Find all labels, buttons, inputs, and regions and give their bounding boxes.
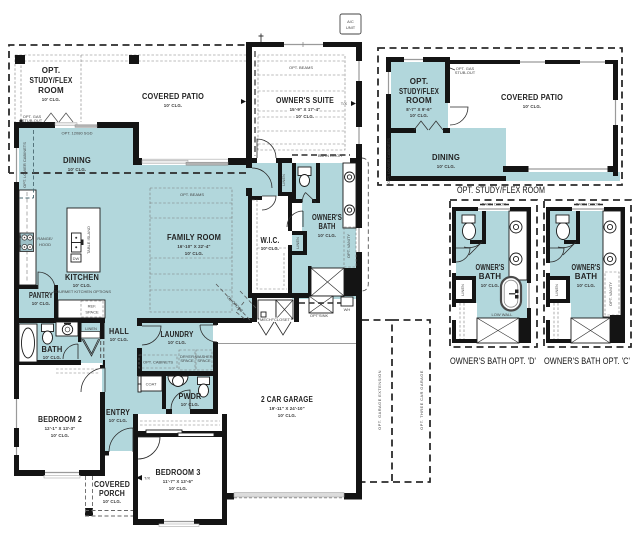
- svg-text:OPT.: OPT.: [42, 66, 61, 75]
- svg-text:OPT. LOWER CABINETS: OPT. LOWER CABINETS: [386, 138, 391, 184]
- svg-text:10' CLG.: 10' CLG.: [523, 104, 541, 109]
- svg-text:SPACE: SPACE: [180, 358, 194, 363]
- svg-text:OPT. VANITY: OPT. VANITY: [608, 282, 613, 306]
- svg-text:KITCHEN: KITCHEN: [65, 273, 99, 282]
- svg-text:OPT'SINK: OPT'SINK: [310, 313, 329, 318]
- svg-text:OPT. CABINETS: OPT. CABINETS: [143, 360, 173, 365]
- svg-text:OPT. GARAGE EXTENSION: OPT. GARAGE EXTENSION: [377, 370, 382, 430]
- svg-text:10' CLG.: 10' CLG.: [318, 233, 336, 238]
- svg-text:16'-10" X 22'-4": 16'-10" X 22'-4": [177, 244, 210, 249]
- svg-text:10' CLG.: 10' CLG.: [278, 413, 296, 418]
- svg-text:10' CLG.: 10' CLG.: [43, 355, 61, 360]
- svg-text:BARN DOOR: BARN DOOR: [482, 202, 506, 207]
- svg-text:10' CLG.: 10' CLG.: [110, 337, 128, 342]
- svg-text:BARN DOOR: BARN DOOR: [576, 202, 600, 207]
- svg-text:DINING: DINING: [63, 156, 91, 165]
- svg-text:19'-11" X 24'-10": 19'-11" X 24'-10": [269, 406, 305, 411]
- svg-text:10' CLG.: 10' CLG.: [103, 499, 121, 504]
- svg-text:BATH: BATH: [575, 272, 597, 281]
- svg-text:OWNER'S: OWNER'S: [476, 263, 505, 272]
- svg-text:STUDY/FLEX: STUDY/FLEX: [399, 87, 439, 96]
- svg-text:OWNER'S: OWNER'S: [572, 263, 601, 272]
- svg-text:LOW WALL: LOW WALL: [492, 312, 514, 317]
- svg-text:OPT.: OPT.: [410, 77, 429, 86]
- svg-text:10' CLG.: 10' CLG.: [261, 246, 279, 251]
- svg-text:DW: DW: [73, 256, 80, 261]
- svg-text:OPT. BEAMS: OPT. BEAMS: [289, 65, 313, 70]
- svg-text:10' CLG.: 10' CLG.: [437, 164, 455, 169]
- svg-text:REF.: REF.: [88, 304, 97, 309]
- svg-text:PORCH: PORCH: [99, 489, 125, 498]
- svg-text:COAT: COAT: [146, 382, 157, 387]
- svg-text:8'-7" X 9'-6": 8'-7" X 9'-6": [406, 107, 432, 112]
- svg-text:10' CLG.: 10' CLG.: [481, 283, 499, 288]
- svg-text:COVERED PATIO: COVERED PATIO: [142, 92, 204, 101]
- svg-text:STUDY/FLEX: STUDY/FLEX: [30, 76, 73, 85]
- svg-text:HALL: HALL: [109, 327, 129, 336]
- svg-text:11'-7" X 13'-6": 11'-7" X 13'-6": [163, 479, 193, 484]
- svg-text:BARN DOOR: BARN DOOR: [318, 153, 342, 158]
- svg-text:T/X: T/X: [144, 476, 151, 481]
- svg-text:STUB-OUT: STUB-OUT: [455, 70, 476, 75]
- svg-text:2 CAR GARAGE: 2 CAR GARAGE: [261, 395, 313, 404]
- svg-text:FAMILY ROOM: FAMILY ROOM: [167, 233, 221, 242]
- svg-text:A/C: A/C: [347, 19, 354, 24]
- svg-text:OPT. VANITY: OPT. VANITY: [346, 234, 351, 258]
- svg-text:10' CLG.: 10' CLG.: [168, 340, 186, 345]
- svg-text:10' CLG.: 10' CLG.: [296, 114, 314, 119]
- svg-text:TABLE ISLAND: TABLE ISLAND: [86, 226, 91, 254]
- svg-text:HOOD: HOOD: [39, 242, 51, 247]
- svg-text:12'-1" X 13'-3": 12'-1" X 13'-3": [45, 426, 76, 431]
- svg-text:LINEN: LINEN: [85, 326, 97, 331]
- svg-text:BATH: BATH: [42, 345, 63, 354]
- svg-text:10' CLG.: 10' CLG.: [68, 167, 86, 172]
- svg-text:10' CLG.: 10' CLG.: [185, 251, 203, 256]
- svg-text:WH: WH: [344, 307, 351, 312]
- svg-text:OWNER'S: OWNER'S: [312, 213, 342, 222]
- svg-text:OPT. BEAMS: OPT. BEAMS: [180, 192, 204, 197]
- svg-text:W.I.C.: W.I.C.: [261, 236, 280, 245]
- svg-text:COVERED: COVERED: [94, 480, 130, 489]
- svg-text:OPT. LOWER CABINETS: OPT. LOWER CABINETS: [22, 142, 27, 188]
- svg-text:RANGE/: RANGE/: [37, 236, 53, 241]
- svg-text:10' CLG.: 10' CLG.: [410, 113, 428, 118]
- svg-text:10' CLG.: 10' CLG.: [109, 418, 127, 423]
- svg-text:SPACE: SPACE: [197, 358, 211, 363]
- svg-text:OPT. 12080 SGD: OPT. 12080 SGD: [62, 131, 93, 136]
- svg-text:10' CLG.: 10' CLG.: [51, 433, 69, 438]
- svg-text:SPACE: SPACE: [85, 310, 99, 315]
- svg-text:OWNER'S SUITE: OWNER'S SUITE: [276, 96, 334, 105]
- svg-text:10' CLG.: 10' CLG.: [73, 283, 91, 288]
- svg-text:MECH. CLOSET: MECH. CLOSET: [260, 317, 291, 322]
- svg-text:GOURMET KITCHEN OPTIONS: GOURMET KITCHEN OPTIONS: [53, 289, 111, 294]
- svg-text:DINING: DINING: [432, 153, 460, 162]
- svg-text:STUB-OUT: STUB-OUT: [22, 118, 43, 123]
- svg-text:PWDR: PWDR: [179, 392, 202, 401]
- svg-text:BEDROOM 3: BEDROOM 3: [156, 468, 201, 477]
- svg-text:LINEN: LINEN: [460, 284, 465, 296]
- svg-text:BATH: BATH: [479, 272, 501, 281]
- svg-text:ROOM: ROOM: [38, 86, 64, 95]
- svg-text:OWNER'S BATH OPT. 'D': OWNER'S BATH OPT. 'D': [450, 356, 536, 366]
- svg-text:LINEN: LINEN: [281, 174, 286, 186]
- svg-text:UNIT: UNIT: [346, 25, 356, 30]
- svg-text:10' CLG.: 10' CLG.: [181, 402, 199, 407]
- svg-text:BATH: BATH: [319, 222, 336, 231]
- svg-text:LAUNDRY: LAUNDRY: [161, 330, 194, 339]
- svg-text:10' CLG.: 10' CLG.: [164, 103, 182, 108]
- svg-text:10' CLG.: 10' CLG.: [42, 97, 60, 102]
- svg-text:ENTRY: ENTRY: [106, 408, 130, 417]
- svg-text:BEDROOM 2: BEDROOM 2: [38, 415, 82, 424]
- svg-text:ROOM: ROOM: [406, 96, 432, 105]
- svg-text:OPT. STUDY/FLEX ROOM: OPT. STUDY/FLEX ROOM: [457, 185, 545, 195]
- svg-text:T/X: T/X: [341, 101, 348, 106]
- svg-text:OWNER'S BATH OPT. 'C': OWNER'S BATH OPT. 'C': [544, 356, 630, 366]
- svg-text:10' CLG.: 10' CLG.: [577, 283, 595, 288]
- svg-text:LINEN: LINEN: [554, 284, 559, 296]
- svg-text:10' CLG.: 10' CLG.: [169, 486, 187, 491]
- svg-text:PANTRY: PANTRY: [29, 291, 53, 300]
- svg-text:COVERED PATIO: COVERED PATIO: [501, 93, 563, 102]
- svg-text:15'-9" X 17'-4": 15'-9" X 17'-4": [290, 107, 321, 112]
- svg-text:LINEN: LINEN: [295, 237, 300, 249]
- svg-text:10' CLG.: 10' CLG.: [32, 301, 50, 306]
- svg-text:OPT. THREE CAR GARAGE: OPT. THREE CAR GARAGE: [419, 370, 424, 430]
